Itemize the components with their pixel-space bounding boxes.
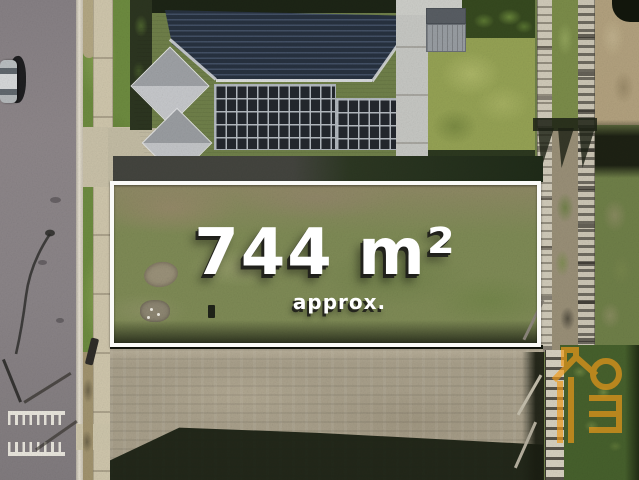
kerb (76, 0, 83, 480)
solar-panel-array (214, 84, 336, 150)
driveway-crossover (76, 424, 113, 450)
rumble-bar (8, 452, 65, 456)
roof-ridge (216, 79, 372, 82)
logo-glyph (592, 398, 619, 430)
road-patch (50, 197, 61, 203)
neighbour-grass (595, 170, 639, 352)
garden-shed (426, 8, 466, 24)
dead-grass-patch (83, 352, 93, 480)
aerial-photo: 744 m² approx. (0, 0, 639, 480)
tree-shadow (110, 349, 543, 480)
road-rumble-strip (8, 411, 65, 425)
concrete-path (396, 0, 428, 164)
lot-label-group: 744 m² approx. (110, 181, 541, 347)
fence-shadow (595, 120, 639, 178)
street-light-shadow (10, 226, 58, 360)
fence-shadow (522, 352, 544, 480)
garden-shed (426, 24, 466, 52)
garden-shrubs (462, 0, 535, 38)
area-label: 744 m² (194, 221, 457, 285)
parked-car (0, 60, 17, 103)
real-estate-logo-watermark (550, 346, 636, 446)
graded-dirt-lot (110, 349, 543, 480)
boundary-garden-strip (113, 156, 543, 182)
fence-gap-grass (552, 0, 578, 130)
fence-gap-scrub (552, 130, 578, 352)
timber-fence (578, 0, 595, 352)
solar-panel-array (336, 98, 398, 150)
rumble-teeth (8, 415, 65, 425)
approx-label: approx. (293, 290, 386, 314)
